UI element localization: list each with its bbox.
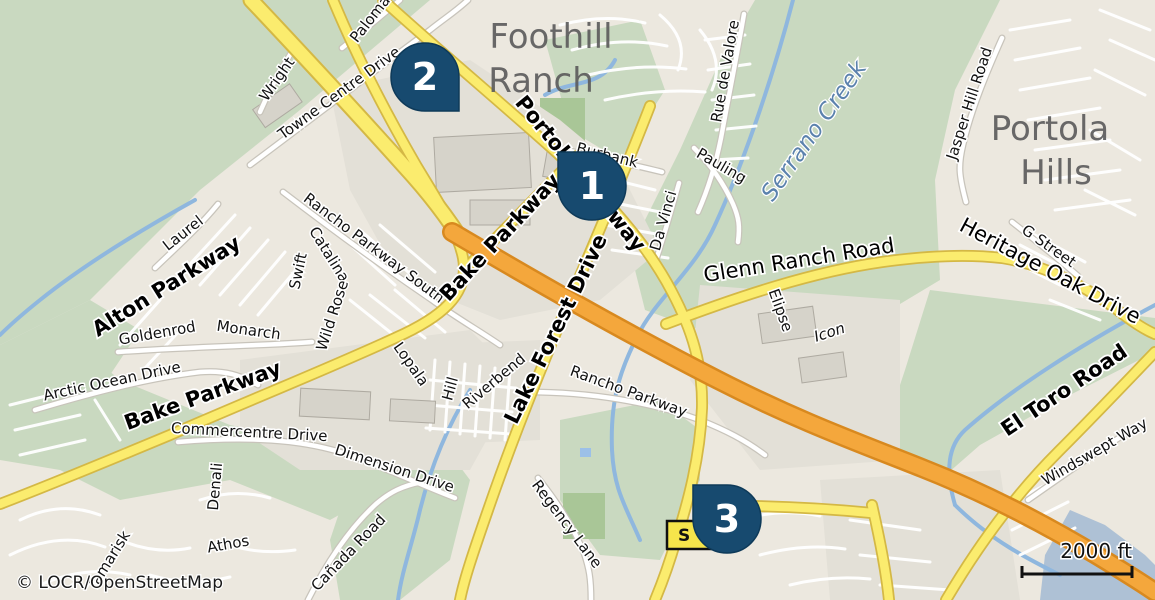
map-marker-2[interactable]: 2 [391, 43, 459, 111]
place-label: Foothill [489, 17, 612, 57]
map-marker-1[interactable]: 1 [558, 152, 626, 220]
scale-bar-label: 2000 ft [1060, 539, 1132, 563]
marker-2-number: 2 [412, 55, 438, 99]
map-svg: Wright Towne Centre Drive Paloma Burbank… [0, 0, 1155, 600]
map-canvas[interactable]: Wright Towne Centre Drive Paloma Burbank… [0, 0, 1155, 600]
place-label: Hills [1020, 153, 1092, 193]
pond [580, 448, 591, 457]
map-attribution: © LOCR/OpenStreetMap [16, 573, 223, 593]
marker-3-number: 3 [714, 497, 740, 541]
map-marker-3[interactable]: 3 [693, 485, 761, 553]
place-label: Ranch [488, 61, 594, 101]
place-label: Portola [991, 109, 1110, 149]
route-shield-text: S [678, 526, 690, 546]
marker-1-number: 1 [579, 164, 605, 208]
